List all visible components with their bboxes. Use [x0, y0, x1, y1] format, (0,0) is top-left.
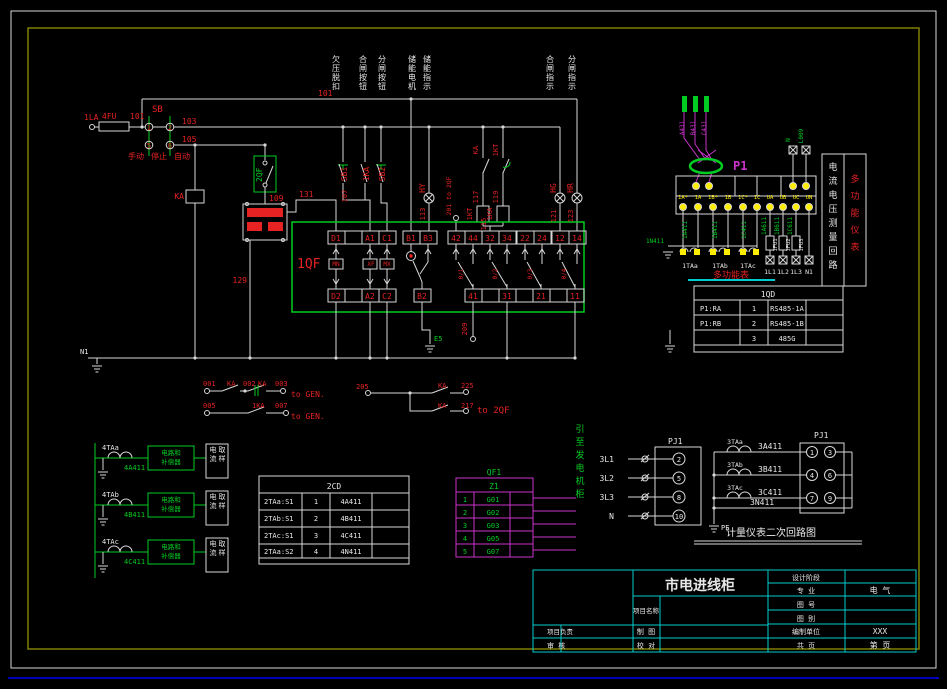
label: 4	[810, 472, 814, 480]
lamp-hr-icon	[572, 193, 582, 203]
drawing-no-label: 图 号	[797, 601, 815, 609]
label: 2	[168, 124, 172, 132]
mode-auto: 自动	[174, 151, 190, 161]
label: D2	[331, 292, 341, 301]
terminal-pj1-left: PJ1	[668, 437, 683, 446]
label: N	[609, 512, 614, 521]
label: 3N411	[750, 498, 774, 507]
label: 1B411	[712, 221, 719, 239]
label: 44	[468, 234, 478, 243]
label: N1	[805, 268, 813, 276]
ct-1taa: 1TAa	[682, 262, 698, 270]
p1-top-terminals	[693, 183, 810, 190]
label: 3	[828, 449, 832, 457]
table-1qd-title: 1QD	[761, 290, 776, 299]
label: 12	[555, 234, 565, 243]
label: 4A411	[124, 464, 145, 472]
label: SB1	[340, 167, 349, 182]
label: 取样	[219, 493, 226, 510]
label: B3	[423, 234, 433, 243]
label: 1	[147, 124, 151, 132]
label: KA	[438, 402, 447, 410]
table-1qd-cell: RS485-1B	[770, 320, 804, 328]
label: 2	[677, 456, 681, 464]
ct-1tab: 1TAb	[712, 262, 728, 270]
column-label: 合闸按钮	[359, 54, 367, 91]
cabinet-title: 市电进线柜	[665, 577, 735, 594]
table-1qd-cell: P1:RA	[700, 305, 722, 313]
lamp-hg-icon	[555, 193, 565, 203]
label: 5	[147, 142, 151, 150]
label: to 2QF	[477, 406, 510, 416]
breaker-1qf: 1QF	[297, 257, 321, 272]
column-label: 合闸指示	[546, 54, 554, 91]
label: 1C	[754, 195, 761, 201]
cad-schematic-canvas: 市电进线柜 项目名称 制 图 校 对 项目负责 审 核 设计阶段 专 业 电 气…	[0, 0, 947, 689]
label: 0/2	[492, 268, 499, 279]
label: 129	[233, 276, 248, 285]
label: 电路和	[161, 448, 181, 457]
label: C2	[382, 292, 392, 301]
label: 取样	[219, 446, 226, 463]
label: 1A*	[678, 195, 688, 201]
label: 1	[810, 449, 814, 457]
org-value: XXX	[873, 627, 888, 636]
label: 131	[299, 190, 314, 199]
lamp-hy: HY	[418, 183, 427, 193]
table-qf1-cell: G02	[487, 509, 500, 517]
label: 4C411	[124, 558, 145, 566]
legend-left: 电流电压测量回路	[828, 161, 837, 271]
coil-mn: MN	[332, 261, 340, 268]
coil-1kt: 1KT	[466, 207, 474, 220]
table-2cd-cell: 2TAc:S1	[264, 532, 294, 540]
label: Z1	[489, 482, 499, 491]
label: E5	[434, 335, 442, 343]
table-2cd-cell: 1	[314, 498, 318, 506]
label: 205	[356, 383, 369, 391]
label: KA	[227, 380, 236, 388]
label: 32	[485, 234, 495, 243]
label: 1A611	[761, 217, 768, 235]
label: 117	[472, 191, 480, 204]
table-2cd-title: 2CD	[327, 482, 342, 491]
label: 1FU2	[786, 238, 792, 251]
ka-coil	[186, 190, 204, 203]
table-2cd-cell: 4N411	[340, 548, 361, 556]
table-1qd-cell: P1:RB	[700, 320, 721, 328]
label: 109	[269, 194, 284, 203]
label: 119	[492, 191, 500, 204]
drawing-type-label: 图 别	[797, 614, 815, 623]
label: 6	[168, 142, 172, 150]
charging-motor	[407, 244, 432, 289]
label: 14	[572, 234, 582, 243]
label: D1	[331, 234, 341, 243]
label: 24	[537, 234, 547, 243]
label: 115	[480, 218, 488, 231]
label: 1KT	[492, 143, 500, 156]
column-label: 分闸指示	[568, 55, 576, 91]
label: A1	[365, 234, 375, 243]
aux-contacts	[453, 244, 580, 289]
ct-3tab: 3TAb	[727, 461, 743, 469]
sb-button-links	[149, 116, 170, 156]
label: 1L3	[790, 268, 802, 276]
label: 补偿器	[161, 504, 181, 513]
label: N1	[80, 348, 88, 356]
ground-icon	[425, 346, 435, 352]
column-label: 分闸按钮	[378, 55, 386, 91]
label: 123	[567, 210, 575, 223]
rectifier-block	[243, 203, 287, 242]
lamp-hr: HR	[566, 183, 575, 193]
table-qf1-cell: 3	[463, 522, 467, 530]
ct-4tab: 4TAb	[102, 491, 119, 499]
table-qf1-cell: G07	[487, 548, 500, 556]
label: 10	[675, 513, 683, 521]
specialty-value: 电 气	[870, 585, 891, 595]
title-block: 市电进线柜 项目名称 制 图 校 对 项目负责 审 核 设计阶段 专 业 电 气…	[533, 570, 916, 652]
label: 225	[461, 382, 474, 390]
label: 3B411	[758, 465, 782, 474]
table-2cd-cell: 4B411	[340, 515, 361, 523]
table-qf1-grid	[456, 478, 576, 557]
table-qf1-cell: G03	[487, 522, 500, 530]
lamp-hg: HG	[549, 183, 558, 193]
label: 121	[550, 210, 558, 223]
label: 补偿器	[161, 457, 181, 466]
label: SB2	[378, 167, 387, 182]
relay-ka: KA	[174, 192, 184, 201]
ct-4taa: 4TAa	[102, 444, 119, 452]
label: B431	[690, 120, 697, 135]
1ka-coil	[497, 206, 509, 222]
label: 217	[461, 402, 474, 410]
label: 107	[341, 190, 349, 203]
table-1qd-cell: 3	[752, 335, 756, 343]
terminal-pj1-right: PJ1	[814, 431, 829, 440]
label: L009	[798, 128, 805, 143]
label: 3L1	[600, 455, 615, 464]
label: UC	[793, 195, 800, 201]
label: 209	[461, 323, 469, 336]
label: 41	[468, 292, 478, 301]
label: to GEN.	[291, 412, 325, 421]
fuse-ref: 4FU	[102, 112, 117, 121]
label: 1C*	[738, 195, 748, 201]
label: 31	[502, 292, 512, 301]
label: 1B*	[708, 195, 718, 201]
label: 3A411	[758, 442, 782, 451]
column-label: 欠压脱扣	[332, 54, 340, 91]
ct-4tac: 4TAc	[102, 538, 119, 546]
label: 001	[203, 380, 216, 388]
stage-label: 设计阶段	[792, 573, 820, 582]
table-2cd-cell: 2TAa:S2	[264, 548, 294, 556]
label: 22	[520, 234, 530, 243]
label: 电路和	[161, 495, 181, 504]
label: 1B611	[774, 217, 781, 235]
label: 2QF	[255, 167, 264, 182]
label: 3L3	[600, 493, 615, 502]
label: 1B	[725, 195, 732, 201]
label: 1KA	[252, 402, 265, 410]
schematic-svg: 市电进线柜 项目名称 制 图 校 对 项目负责 审 核 设计阶段 专 业 电 气…	[0, 0, 947, 689]
column-label: 储能指示	[423, 54, 431, 91]
ct-toroid	[690, 159, 722, 173]
table-1qd-cell: 485G	[779, 335, 796, 343]
label: 201 to 2QF	[445, 176, 453, 215]
label: 1C611	[787, 217, 794, 235]
to-generator-label: 引至发电机柜	[575, 424, 584, 500]
label: N	[785, 138, 792, 142]
check-label: 校 对	[637, 641, 655, 650]
label: B2	[417, 292, 427, 301]
label: 1FU3	[799, 238, 805, 251]
coil-mx: MX	[383, 261, 391, 268]
table-2cd-cell: 4C411	[340, 532, 361, 540]
isolation-points	[641, 455, 649, 519]
pages-value: 第 页	[870, 640, 891, 650]
label: A431	[679, 120, 686, 135]
draw-label: 制 图	[637, 627, 655, 636]
label: 5	[677, 475, 681, 483]
mode-stop: 停止	[151, 151, 167, 161]
label: 1L1	[764, 268, 776, 276]
table-2cd-cell: 2TAa:S1	[264, 498, 294, 506]
wire-label: 101	[130, 112, 145, 121]
label: 1FU1	[773, 238, 779, 251]
label: 6	[828, 472, 832, 480]
lamp-hy-icon	[424, 193, 434, 203]
table-2cd-cell: 3	[314, 532, 318, 540]
label: 11	[570, 292, 580, 301]
label: 007	[275, 402, 288, 410]
label: 电流	[210, 539, 217, 557]
pages-label: 共 页	[797, 641, 815, 650]
table-2cd-cell: 2	[314, 515, 318, 523]
label: 电流	[210, 445, 217, 463]
label: 8	[677, 494, 681, 502]
legend-right: 多功能仪表	[850, 173, 859, 253]
label: 1C411	[741, 221, 748, 239]
label: 取样	[219, 540, 226, 557]
label: C1	[382, 234, 392, 243]
project-name-label: 项目名称	[633, 606, 660, 615]
junction-dots	[140, 97, 715, 509]
wire-label-1la: 1LA	[84, 113, 99, 122]
table-qf1-cell: 1	[463, 496, 467, 504]
table-2cd-cell: 4A411	[340, 498, 361, 506]
table-1qd-cell: RS485-1A	[770, 305, 805, 313]
table-qf1-cell: 4	[463, 535, 467, 543]
label: 1KA	[362, 167, 371, 182]
label: 105	[182, 135, 197, 144]
p1-bottom-terminals	[680, 204, 813, 211]
label: UB	[780, 195, 787, 201]
column-label: 储能电机	[408, 54, 416, 91]
label: UN	[806, 195, 813, 201]
busbars	[682, 96, 709, 112]
label: 42	[451, 234, 461, 243]
label: KA	[472, 145, 480, 154]
label: 002	[243, 380, 256, 388]
label: 0/1	[458, 268, 465, 279]
ct-3taa: 3TAa	[727, 438, 743, 446]
label: 0/3	[527, 268, 534, 279]
ground-icon	[92, 366, 102, 372]
metering-caption: 计量仪表二次回路图	[726, 526, 816, 539]
label: 005	[203, 402, 216, 410]
table-1qd-cell: 2	[752, 320, 756, 328]
ct-1tac: 1TAc	[740, 262, 756, 270]
table-qf1-title: QF1	[487, 468, 502, 477]
label: 34	[502, 234, 512, 243]
label: 1A411	[682, 221, 689, 239]
table-1qd-cell: 1	[752, 305, 756, 313]
label: to GEN.	[291, 390, 325, 399]
multifunction-meter-label: 多功能表	[713, 269, 749, 281]
label: C431	[701, 120, 708, 135]
label: 电路和	[161, 542, 181, 551]
coil-xf: XF	[367, 261, 375, 268]
aux-supply	[789, 146, 810, 182]
label: 1N411	[646, 238, 664, 245]
table-qf1-cell: G01	[487, 496, 500, 504]
button-ref: SB	[152, 105, 163, 115]
label: 101	[318, 89, 333, 98]
label: 1A	[695, 195, 702, 201]
label: 补偿器	[161, 551, 181, 560]
project-lead-label: 项目负责	[547, 627, 574, 636]
table-qf1-cell: 2	[463, 509, 467, 517]
table-qf1-cell: 5	[463, 548, 467, 556]
label: 21	[536, 292, 546, 301]
label: 1L2	[777, 268, 789, 276]
label: B1	[406, 234, 416, 243]
label: 3L2	[600, 474, 615, 483]
label: 7	[810, 495, 814, 503]
specialty-label: 专 业	[797, 586, 815, 595]
label: UA	[767, 195, 774, 201]
label: KA	[258, 380, 267, 388]
fuse-4fu	[99, 122, 129, 131]
table-2cd-cell: 2TAb:S1	[264, 515, 294, 523]
table-2cd-cell: 4	[314, 548, 318, 556]
org-label: 编制单位	[792, 627, 820, 636]
label: 4B411	[124, 511, 145, 519]
label-layer: 1LA4FU101SB1256103105手动停止自动101KA12910913…	[80, 54, 860, 566]
label: 3C411	[758, 488, 782, 497]
table-qf1-cell: G05	[487, 535, 500, 543]
label: KA	[438, 382, 447, 390]
label: 113	[419, 208, 427, 221]
mode-manual: 手动	[128, 151, 144, 161]
label: 003	[275, 380, 288, 388]
label: 9	[828, 495, 832, 503]
label: 103	[182, 117, 197, 126]
review-label: 审 核	[547, 641, 565, 650]
label: 电流	[210, 492, 217, 510]
meter-p1: P1	[733, 159, 747, 173]
label: 0/4	[561, 268, 568, 279]
ka-aux-rows	[205, 385, 469, 416]
ct-3tac: 3TAc	[727, 484, 743, 492]
label: A2	[365, 292, 375, 301]
